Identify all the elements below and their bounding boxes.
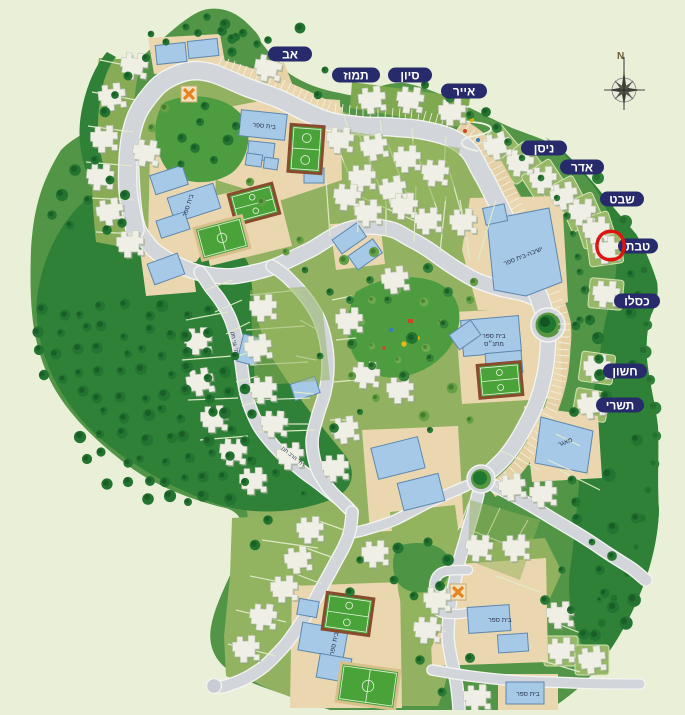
svg-text:תשרי: תשרי — [606, 399, 635, 413]
svg-text:מתנ״ס: מתנ״ס — [484, 341, 504, 348]
svg-text:ניסן: ניסן — [534, 142, 555, 156]
svg-text:טבת: טבת — [626, 240, 651, 254]
svg-text:תמוז: תמוז — [343, 69, 368, 83]
svg-text:בית ספר: בית ספר — [482, 333, 505, 340]
svg-text:N: N — [617, 51, 624, 62]
svg-text:שבט: שבט — [609, 193, 635, 207]
svg-text:אייר: אייר — [453, 85, 475, 99]
svg-text:סיון: סיון — [400, 69, 419, 83]
svg-text:אדר: אדר — [571, 161, 593, 175]
svg-text:בית ספר: בית ספר — [488, 617, 511, 624]
svg-text:אב: אב — [282, 48, 298, 62]
svg-text:חשון: חשון — [612, 365, 637, 379]
svg-text:כסלו: כסלו — [624, 295, 650, 309]
svg-text:בית ספר: בית ספר — [516, 691, 539, 698]
